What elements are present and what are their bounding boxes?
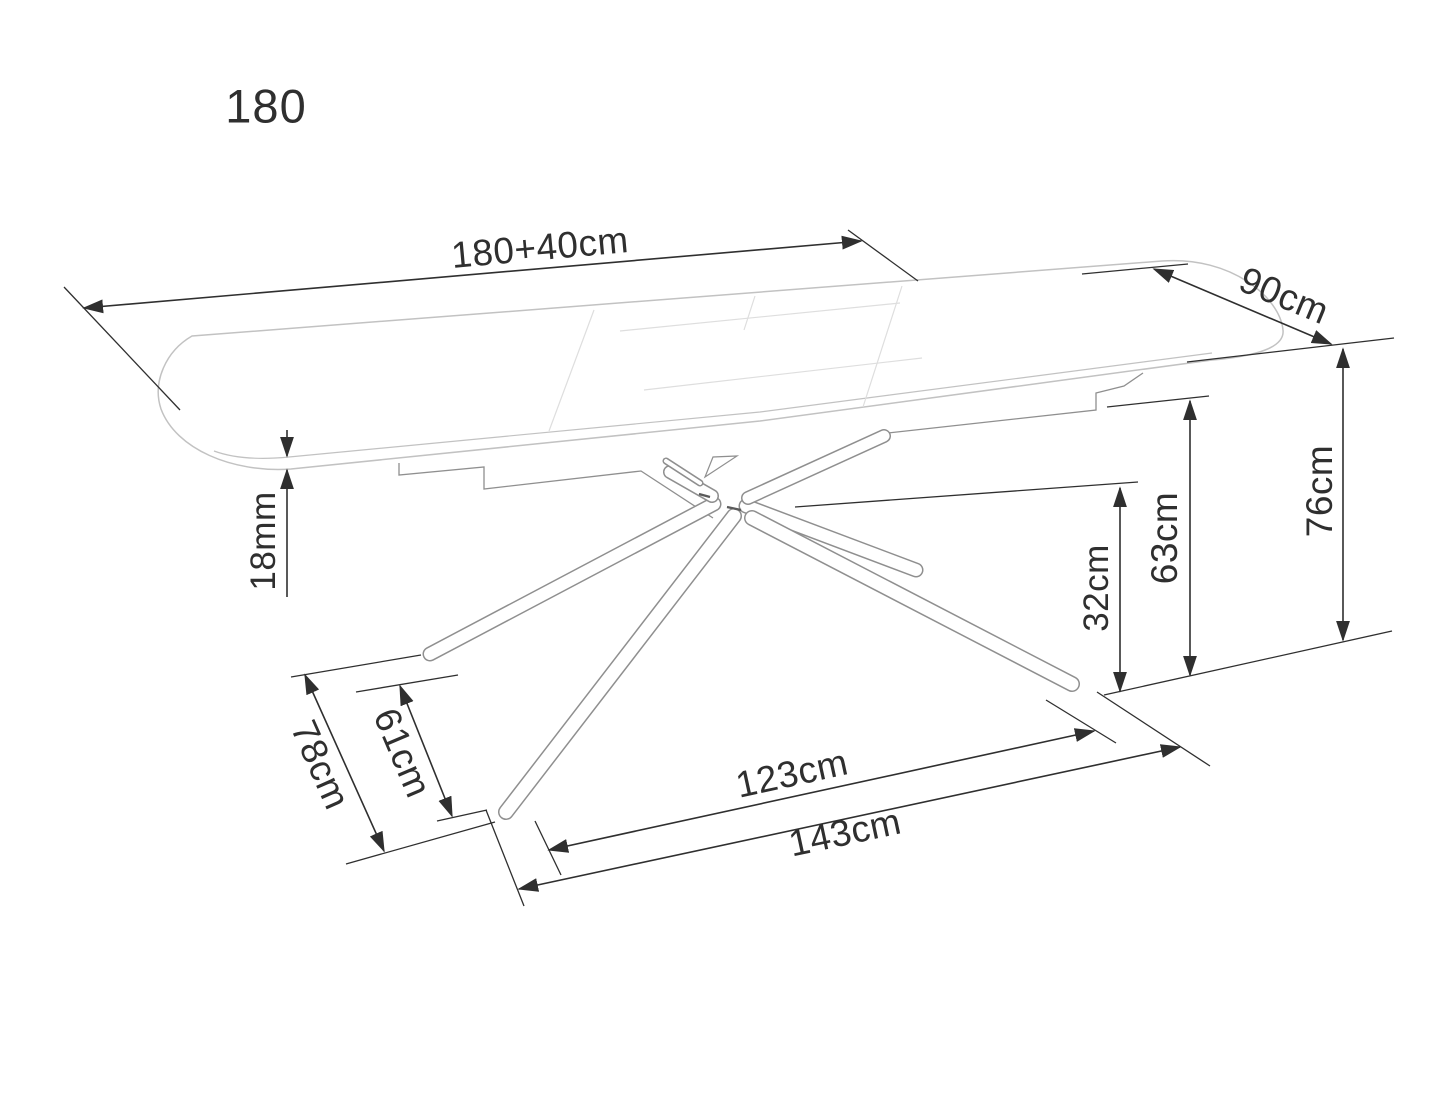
extension-line: [437, 810, 487, 821]
tabletop-outline: [158, 261, 1283, 470]
dim-label-height: 76cm: [1299, 445, 1341, 537]
extension-line: [1046, 700, 1116, 743]
table-drawing-canvas: [0, 0, 1445, 1105]
floor-extension-line: [1104, 631, 1392, 695]
base-gusset-triangle: [705, 456, 737, 477]
dim-label-base-top-height: 63cm: [1144, 492, 1186, 584]
extension-line: [1097, 692, 1210, 766]
dim-label-top-thickness: 18mm: [244, 491, 284, 590]
spider-base: [430, 436, 1072, 812]
extension-line: [346, 822, 495, 864]
extension-line: [1107, 396, 1209, 407]
extension-line: [291, 655, 421, 677]
dim-label-cross-height: 32cm: [1077, 544, 1117, 632]
extension-line: [356, 675, 458, 692]
variant-size-label: 180: [225, 79, 306, 134]
technical-drawing-page: 180 180+40cm 90cm 76cm 63cm 32cm 18mm 61…: [0, 0, 1445, 1105]
extension-line: [795, 482, 1138, 507]
extension-line: [848, 230, 918, 281]
tabletop: [158, 261, 1283, 518]
extension-line: [486, 810, 524, 906]
